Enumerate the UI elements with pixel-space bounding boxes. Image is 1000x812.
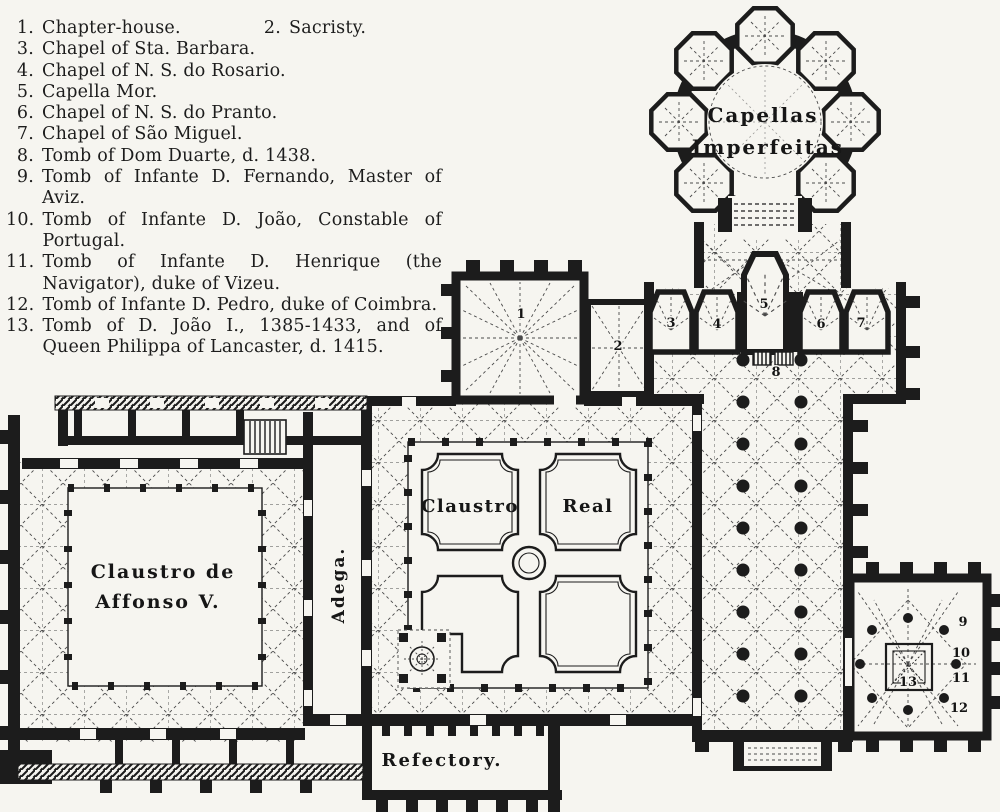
plan-marker-1: 1 xyxy=(516,307,525,322)
plan-marker-7: 7 xyxy=(856,316,865,331)
plan-marker-13: 13 xyxy=(899,675,917,690)
legend-number: 1. xyxy=(6,18,34,39)
legend-number: 9. xyxy=(6,167,34,210)
legend-number: 5. xyxy=(6,82,34,103)
legend-number: 7. xyxy=(6,124,34,145)
legend-text: Sacristy. xyxy=(289,18,442,39)
staircase xyxy=(244,420,286,454)
legend-number: 8. xyxy=(6,146,34,167)
legend-item: 10. Tomb of Infante D. João, Constable o… xyxy=(6,210,442,253)
legend-text: Tomb of D. João I., 1385-1433, and of Qu… xyxy=(42,316,442,359)
plan-marker-5: 5 xyxy=(759,297,768,312)
legend-text: Chapel of N. S. do Rosario. xyxy=(42,61,442,82)
label-capellas-line1: Capellas xyxy=(708,103,819,127)
legend: 1. Chapter-house. 2. Sacristy. 3. Chapel… xyxy=(6,18,442,359)
legend-text: Chapel of N. S. do Pranto. xyxy=(42,103,442,124)
legend-item-row-1-2: 1. Chapter-house. 2. Sacristy. xyxy=(6,18,442,39)
plan-marker-8: 8 xyxy=(771,365,780,380)
plan-marker-6: 6 xyxy=(816,317,825,332)
legend-text: Tomb of Dom Duarte, d. 1438. xyxy=(42,146,442,167)
legend-number: 2. xyxy=(247,18,281,39)
label-affonso-line1: Claustro de xyxy=(91,561,236,583)
legend-text: Chapter-house. xyxy=(42,18,247,39)
label-capellas-line2: Imperfeitas xyxy=(692,135,844,159)
plan-marker-9: 9 xyxy=(958,615,967,630)
label-affonso-line2: Affonso V. xyxy=(94,591,220,613)
lavabo xyxy=(398,630,450,688)
label-claustro-real-right: Real xyxy=(563,496,614,517)
legend-number: 11. xyxy=(6,252,34,295)
plan-marker-4: 4 xyxy=(712,317,721,332)
legend-text: Tomb of Infante D. Henrique (the Navigat… xyxy=(42,252,442,295)
legend-number: 10. xyxy=(6,210,34,253)
plan-marker-10: 10 xyxy=(952,646,970,661)
legend-item: 7. Chapel of São Miguel. xyxy=(6,124,442,145)
legend-text: Tomb of Infante D. Pedro, duke of Coimbr… xyxy=(42,295,442,316)
legend-text: Tomb of Infante D. Fernando, Master of A… xyxy=(42,167,442,210)
label-claustro-real-left: Claustro xyxy=(421,496,519,517)
plan-marker-11: 11 xyxy=(952,671,970,686)
legend-item: 11. Tomb of Infante D. Henrique (the Nav… xyxy=(6,252,442,295)
legend-number: 3. xyxy=(6,39,34,60)
plan-marker-3: 3 xyxy=(666,316,675,331)
legend-text: Tomb of Infante D. João, Constable of Po… xyxy=(42,210,442,253)
legend-item: 6. Chapel of N. S. do Pranto. xyxy=(6,103,442,124)
legend-text: Chapel of Sta. Barbara. xyxy=(42,39,442,60)
legend-item: 9. Tomb of Infante D. Fernando, Master o… xyxy=(6,167,442,210)
legend-item: 3. Chapel of Sta. Barbara. xyxy=(6,39,442,60)
label-adega: Adega. xyxy=(329,547,349,625)
legend-item: 13. Tomb of D. João I., 1385-1433, and o… xyxy=(6,316,442,359)
legend-number: 13. xyxy=(6,316,34,359)
floor-plan-page: { "colors": { "paper": "#f6f5f0", "ink":… xyxy=(0,0,1000,812)
legend-item: 5. Capella Mor. xyxy=(6,82,442,103)
legend-text: Chapel of São Miguel. xyxy=(42,124,442,145)
plan-marker-12: 12 xyxy=(950,701,968,716)
legend-item: 12. Tomb of Infante D. Pedro, duke of Co… xyxy=(6,295,442,316)
label-refectory: Refectory. xyxy=(381,750,502,771)
legend-number: 6. xyxy=(6,103,34,124)
legend-number: 12. xyxy=(6,295,34,316)
legend-item: 4. Chapel of N. S. do Rosario. xyxy=(6,61,442,82)
legend-item: 8. Tomb of Dom Duarte, d. 1438. xyxy=(6,146,442,167)
plan-marker-2: 2 xyxy=(613,339,622,354)
legend-text: Capella Mor. xyxy=(42,82,442,103)
legend-number: 4. xyxy=(6,61,34,82)
